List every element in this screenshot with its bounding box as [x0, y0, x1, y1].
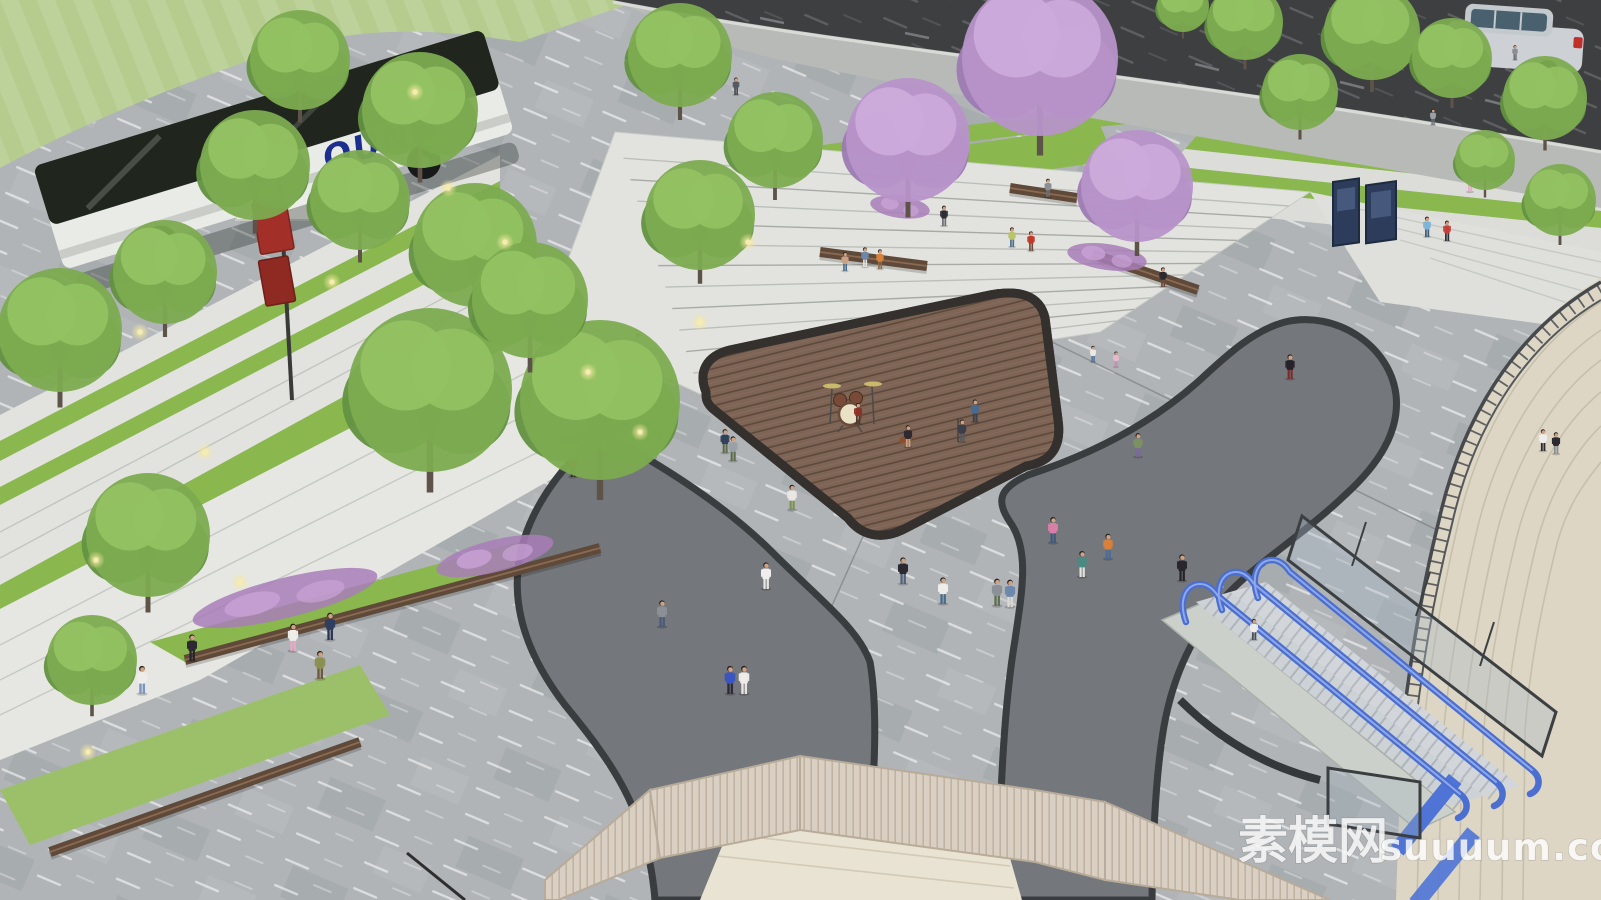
- watermark-domain: suuuum.com: [1380, 826, 1601, 869]
- glow-light: [691, 313, 709, 331]
- glow-light: [131, 323, 149, 341]
- glow-light: [439, 179, 457, 197]
- glow-light: [196, 443, 214, 461]
- scene-svg: OUND 素模网 suuuum.com: [0, 0, 1601, 900]
- glow-light: [406, 83, 424, 101]
- glow-light: [739, 233, 757, 251]
- glow-light: [231, 573, 249, 591]
- plaza-render: OUND 素模网 suuuum.com: [0, 0, 1601, 900]
- watermark-cn: 素模网: [1238, 812, 1388, 870]
- van-taillight: [1573, 37, 1583, 49]
- glow-light: [579, 363, 597, 381]
- glow-light: [79, 743, 97, 761]
- glow-light: [87, 551, 105, 569]
- glow-light: [496, 233, 514, 251]
- glow-light: [323, 273, 341, 291]
- glow-light: [631, 423, 649, 441]
